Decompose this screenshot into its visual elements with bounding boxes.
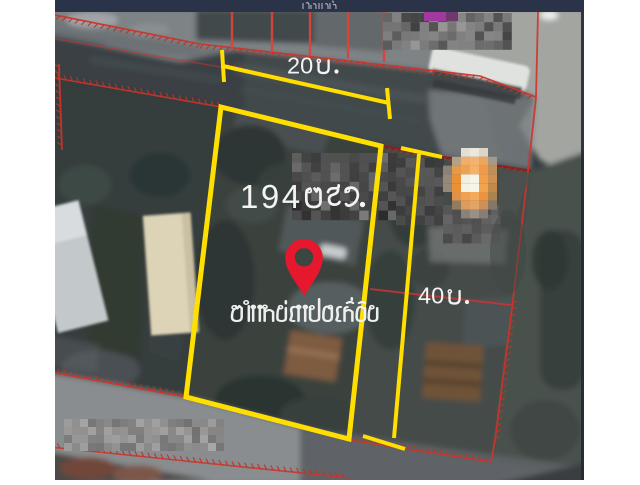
svg-text:194: 194: [240, 178, 303, 215]
svg-text:40: 40: [418, 283, 444, 309]
svg-text:20: 20: [287, 53, 313, 79]
